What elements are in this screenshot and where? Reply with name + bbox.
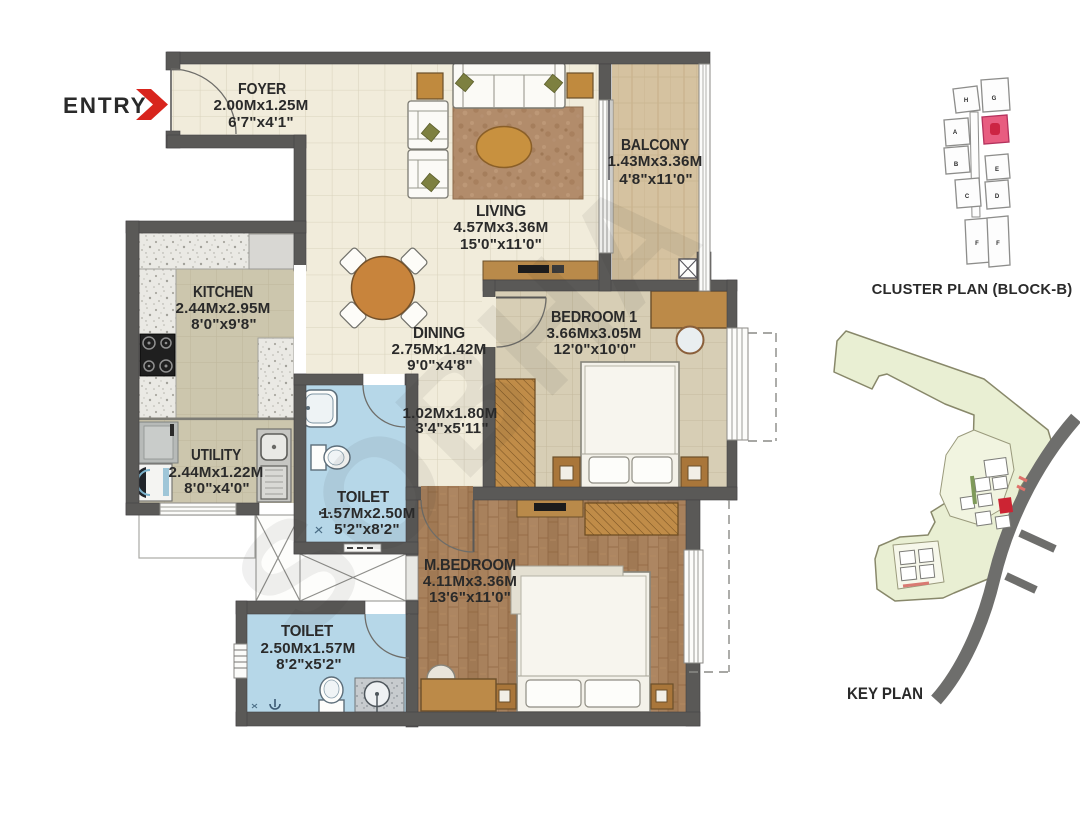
svg-text:D: D [995,194,1000,200]
svg-text:A: A [953,130,958,136]
svg-text:TOILET: TOILET [337,489,390,506]
svg-text:5'2"x8'2": 5'2"x8'2" [334,521,400,538]
svg-text:3.66Mx3.05M: 3.66Mx3.05M [546,325,641,342]
svg-text:E: E [995,167,999,173]
svg-text:M.BEDROOM: M.BEDROOM [424,557,516,574]
svg-text:1.43Mx3.36M: 1.43Mx3.36M [607,153,702,170]
svg-text:2.44Mx1.22M: 2.44Mx1.22M [168,464,263,481]
svg-text:8'2"x5'2": 8'2"x5'2" [276,656,342,673]
svg-text:4.57Mx3.36M: 4.57Mx3.36M [453,219,548,236]
svg-text:3'4"x5'11": 3'4"x5'11" [415,420,488,437]
svg-text:F: F [996,241,1000,247]
svg-text:DINING: DINING [413,325,465,342]
svg-text:4'8"x11'0": 4'8"x11'0" [619,171,692,188]
svg-text:F: F [975,241,979,247]
svg-text:6'7"x4'1": 6'7"x4'1" [228,114,294,131]
svg-text:8'0"x9'8": 8'0"x9'8" [191,316,257,333]
svg-text:2.75Mx1.42M: 2.75Mx1.42M [391,341,486,358]
svg-text:4.11Mx3.36M: 4.11Mx3.36M [423,573,517,590]
svg-text:BEDROOM 1: BEDROOM 1 [551,309,637,326]
svg-text:C: C [965,194,970,200]
svg-text:15'0"x11'0": 15'0"x11'0" [460,236,542,253]
svg-text:UTILITY: UTILITY [191,447,242,464]
svg-text:FOYER: FOYER [238,81,287,98]
svg-text:2.00Mx1.25M: 2.00Mx1.25M [213,97,308,114]
svg-text:13'6"x11'0": 13'6"x11'0" [429,589,511,606]
svg-text:ENTRY: ENTRY [63,93,147,118]
svg-text:8'0"x4'0": 8'0"x4'0" [184,480,250,497]
svg-text:12'0"x10'0": 12'0"x10'0" [554,341,637,358]
svg-text:2.44Mx2.95M: 2.44Mx2.95M [175,300,270,317]
svg-text:CLUSTER PLAN (BLOCK-B): CLUSTER PLAN (BLOCK-B) [872,282,1073,298]
svg-text:G: G [992,96,997,102]
svg-text:H: H [964,98,968,104]
svg-text:TOILET: TOILET [281,623,334,640]
svg-text:KEY PLAN: KEY PLAN [847,685,923,703]
svg-text:1.57Mx2.50M: 1.57Mx2.50M [320,505,415,522]
svg-text:BALCONY: BALCONY [621,137,690,154]
svg-text:B: B [954,162,959,168]
svg-text:KITCHEN: KITCHEN [193,284,253,301]
svg-text:2.50Mx1.57M: 2.50Mx1.57M [260,640,355,657]
svg-text:LIVING: LIVING [476,203,526,220]
svg-text:9'0"x4'8": 9'0"x4'8" [407,357,473,374]
